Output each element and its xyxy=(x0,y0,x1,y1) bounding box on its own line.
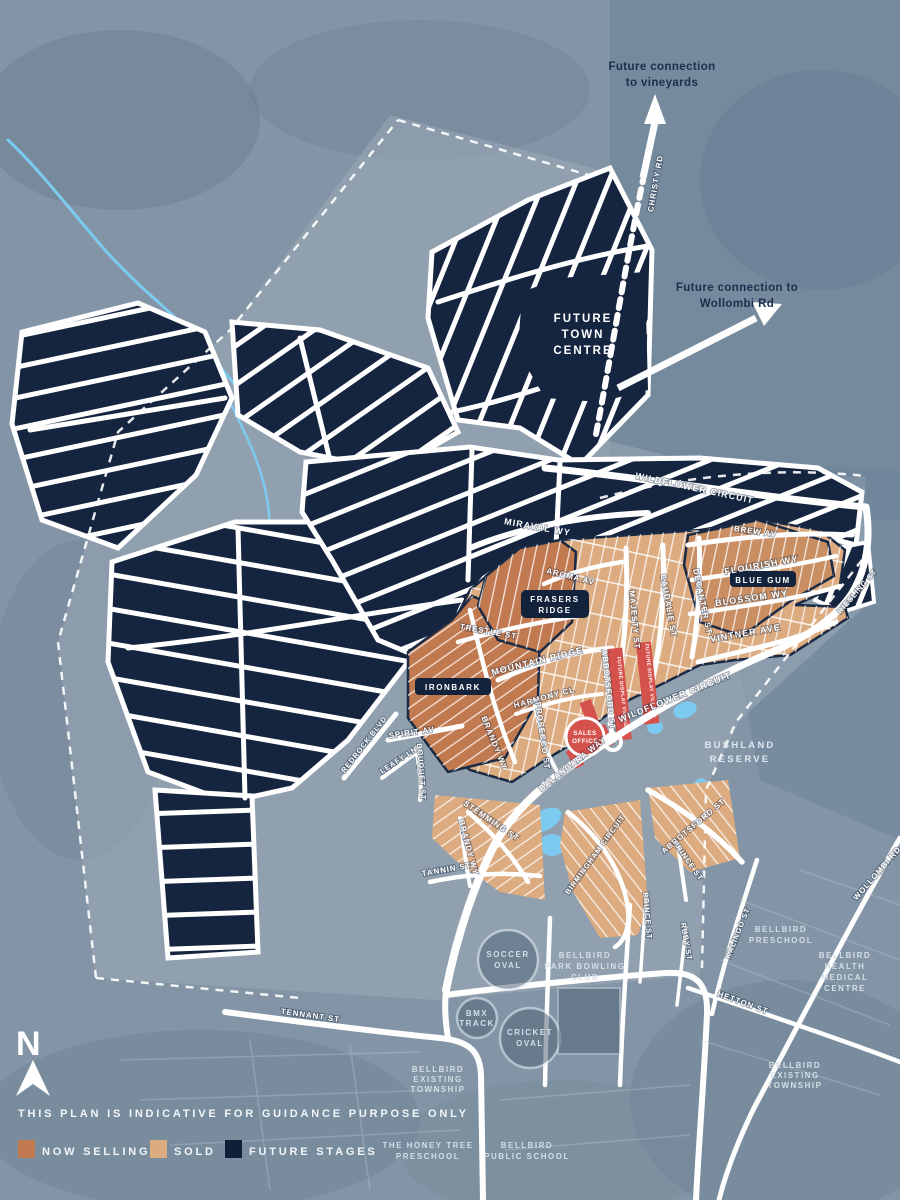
soccer-oval-label: SOCCER xyxy=(486,950,529,959)
svg-text:BLUE GUM: BLUE GUM xyxy=(735,576,790,585)
cricket-oval xyxy=(500,1008,560,1068)
future-town-centre-label: FUTURE xyxy=(554,313,613,325)
svg-text:EXISTING: EXISTING xyxy=(413,1075,462,1084)
svg-text:PRESCHOOL: PRESCHOOL xyxy=(749,936,813,945)
svg-text:CENTRE: CENTRE xyxy=(824,984,866,993)
township-se-label: BELLBIRD xyxy=(769,1061,821,1070)
legend-label-now-selling: NOW SELLING xyxy=(42,1146,150,1158)
svg-text:TRACK: TRACK xyxy=(459,1019,495,1028)
legend-label-future-stages: FUTURE STAGES xyxy=(249,1146,377,1158)
legend-swatch-now-selling xyxy=(18,1140,35,1158)
svg-text:RESERVE: RESERVE xyxy=(710,754,771,765)
legend-swatch-sold xyxy=(150,1140,167,1158)
township-sw-label: BELLBIRD xyxy=(412,1065,464,1074)
wollombi-note: Future connection to xyxy=(676,282,798,294)
svg-text:OVAL: OVAL xyxy=(516,1039,544,1048)
masterplan-map: FUTURE DISPLAY VILLAGE FUTURE DISPLAY VI… xyxy=(0,0,900,1200)
sales-office-label: SALES xyxy=(573,730,597,737)
svg-text:TOWNSHIP: TOWNSHIP xyxy=(768,1081,823,1090)
svg-text:HEALTH: HEALTH xyxy=(825,962,866,971)
svg-text:PUBLIC SCHOOL: PUBLIC SCHOOL xyxy=(484,1152,570,1161)
north-label: N xyxy=(16,1025,41,1063)
cricket-oval-label: CRICKET xyxy=(507,1028,553,1037)
soccer-oval xyxy=(478,930,538,990)
svg-text:RIDGE: RIDGE xyxy=(538,606,571,615)
vineyards-note: Future connection xyxy=(608,61,715,73)
svg-text:TOWNSHIP: TOWNSHIP xyxy=(411,1085,466,1094)
health-centre-label: BELLBIRD xyxy=(819,951,871,960)
svg-text:EXISTING: EXISTING xyxy=(770,1071,819,1080)
svg-text:IRONBARK: IRONBARK xyxy=(425,683,481,692)
bowling-greens xyxy=(558,988,620,1054)
svg-text:CLUB: CLUB xyxy=(571,973,599,982)
bellbird-preschool-label: BELLBIRD xyxy=(755,925,807,934)
svg-text:PARK BOWLING: PARK BOWLING xyxy=(545,962,626,971)
honey-tree-label: THE HONEY TREE xyxy=(382,1141,473,1150)
legend-swatch-future-stages xyxy=(225,1140,242,1158)
legend-label-sold: SOLD xyxy=(174,1146,216,1158)
bmx-track-label: BMX xyxy=(466,1009,488,1018)
bowling-club-label: BELLBIRD xyxy=(559,951,611,960)
public-school-label: BELLBIRD xyxy=(501,1141,553,1150)
svg-text:FRASERS: FRASERS xyxy=(530,595,579,604)
svg-text:TOWN: TOWN xyxy=(562,329,605,341)
svg-text:to vineyards: to vineyards xyxy=(626,77,699,89)
svg-text:OVAL: OVAL xyxy=(494,961,522,970)
bushland-reserve-label: BUSHLAND xyxy=(705,740,776,751)
disclaimer: THIS PLAN IS INDICATIVE FOR GUIDANCE PUR… xyxy=(18,1108,469,1120)
svg-text:MEDICAL: MEDICAL xyxy=(822,973,869,982)
svg-text:CENTRE: CENTRE xyxy=(553,345,612,357)
svg-text:PRESCHOOL: PRESCHOOL xyxy=(396,1152,460,1161)
svg-text:Wollombi Rd: Wollombi Rd xyxy=(700,298,774,310)
bmx-track xyxy=(457,998,497,1038)
